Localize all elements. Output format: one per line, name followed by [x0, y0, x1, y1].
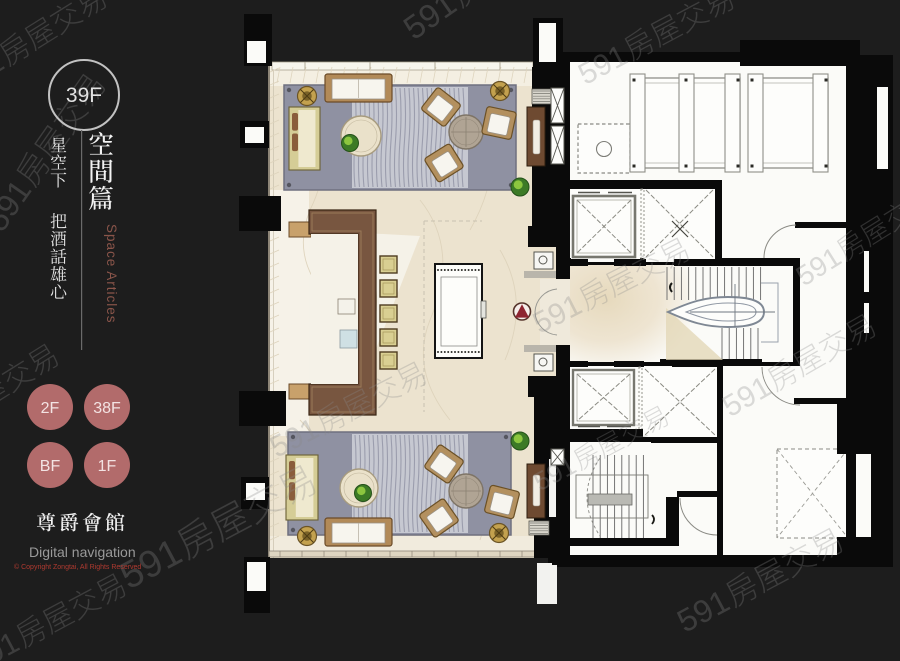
svg-text:39F: 39F — [66, 84, 102, 107]
svg-text:BF: BF — [40, 458, 61, 475]
svg-text:Space Articles: Space Articles — [104, 224, 119, 324]
svg-text:Digital navigation: Digital navigation — [29, 544, 136, 560]
svg-text:38F: 38F — [93, 400, 121, 417]
svg-text:© Copyright Zongtai, All Right: © Copyright Zongtai, All Rights Reserved — [14, 563, 141, 571]
svg-text:1F: 1F — [98, 458, 117, 475]
svg-text:2F: 2F — [41, 400, 60, 417]
